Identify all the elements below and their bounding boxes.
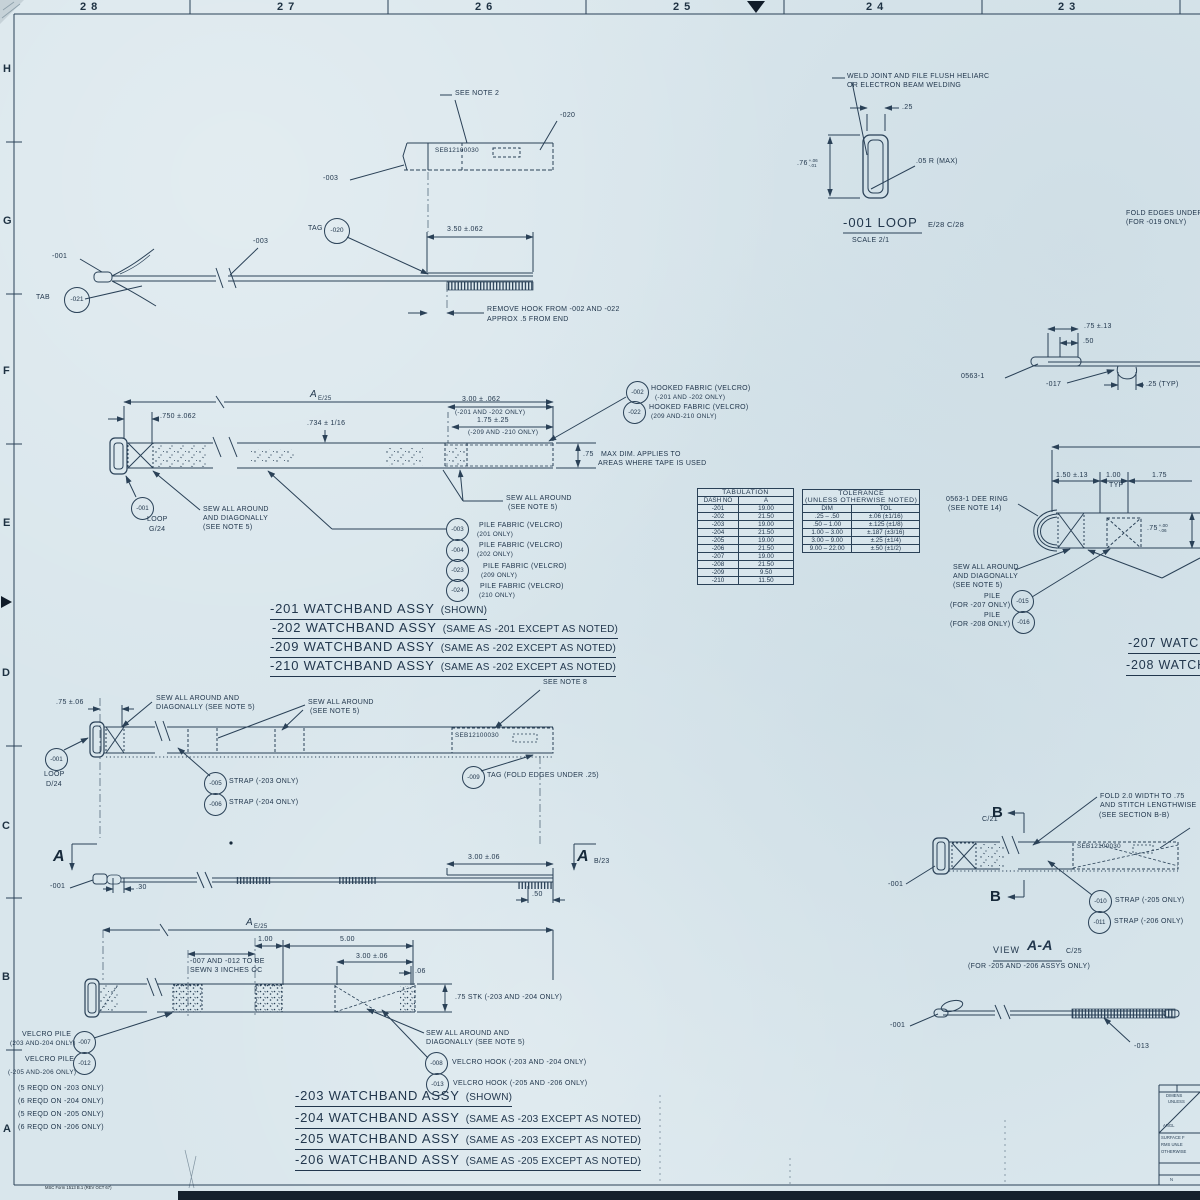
strap-note: STRAP (-206 ONLY) <box>1114 918 1183 927</box>
label-001: -001 <box>52 253 67 262</box>
loop-ref: D/24 <box>46 781 62 790</box>
pile-note: (FOR -207 ONLY) <box>950 602 1010 611</box>
pile-fabric-note: PILE FABRIC (VELCRO) <box>479 522 563 531</box>
title-block-text: OTHERWISE <box>1161 1150 1186 1155</box>
section-mark-a: A <box>53 848 65 866</box>
view-title-aa: A-A <box>1027 941 1053 950</box>
zone-number: 26 <box>475 1 497 13</box>
dim-734: .734 ± 1/16 <box>307 420 345 429</box>
tag-part-number: SEB12100030 <box>455 732 499 741</box>
sew-note: (SEE NOTE 5) <box>203 524 253 533</box>
pile-fabric-note: (201 ONLY) <box>477 531 513 540</box>
fold-note: (FOR -019 ONLY) <box>1126 219 1186 228</box>
zone-number: 28 <box>80 1 102 13</box>
label-003: -003 <box>253 238 268 247</box>
zone-letter: C <box>2 820 10 832</box>
assy-title-204: -204 WATCHBAND ASSY(SAME AS -203 EXCEPT … <box>295 1109 641 1129</box>
balloon-006: -006 <box>204 793 227 816</box>
loop-label: LOOP <box>147 516 168 525</box>
label-020: -020 <box>560 112 575 121</box>
dim-75-note: AREAS WHERE TAPE IS USED <box>598 460 706 469</box>
blueprint-sheet: 28 27 26 25 24 23 H G F E D C B A MSC Fo… <box>0 0 1200 1200</box>
label-003: -003 <box>323 175 338 184</box>
sew-note: SEW ALL AROUND <box>308 699 374 708</box>
assy-title-203: -203 WATCHBAND ASSY(SHOWN) <box>295 1087 512 1107</box>
sew-note: (SEE NOTE 5) <box>953 582 1003 591</box>
form-note: MSC Form 1513 B.1 (REV OCT 67) <box>45 1186 111 1191</box>
sew-note: SEW ALL AROUND <box>953 564 1019 573</box>
table-row: -2099.50 <box>698 569 794 577</box>
assy-title-208: -208 WATCHBAND <box>1126 656 1200 676</box>
table-row: 9.00 – 22.00±.50 (±1/2) <box>803 545 920 553</box>
dim-175: 1.75 ±.25 <box>477 417 509 426</box>
pile-fabric-note: PILE FABRIC (VELCRO) <box>483 563 567 572</box>
hooked-fabric-note: (-201 AND -202 ONLY) <box>655 394 725 403</box>
table-row: 3.00 – 9.00±.25 (±1/4) <box>803 537 920 545</box>
dim-a-overall: AE/25 <box>246 919 268 932</box>
zone-letter: B <box>2 971 10 983</box>
velcro-pile-note: (-205 AND-206 ONLY) <box>8 1069 76 1078</box>
pile-fabric-note: (202 ONLY) <box>477 551 513 560</box>
zone-number: 24 <box>866 1 888 13</box>
sew-note: (SEE NOTE 5) <box>310 708 360 717</box>
dim-100: 1.00 <box>1106 472 1121 481</box>
dim-25: .25 <box>902 104 913 113</box>
reqd-note: (6 REQD ON -204 ONLY) <box>18 1098 104 1107</box>
sewn-oc-note: -007 AND -012 TO BE <box>190 958 265 967</box>
title-block-text: UNLESS <box>1168 1100 1185 1105</box>
sew-note: DIAGONALLY (SEE NOTE 5) <box>426 1039 525 1048</box>
table-row: TABULATION <box>698 489 794 497</box>
balloon-008: -008 <box>425 1052 448 1075</box>
sectionAA-linework <box>70 841 596 903</box>
tolerance-table: TOLERANCE(UNLESS OTHERWISE NOTED) DIMTOL… <box>802 489 920 553</box>
assy-title-201: -201 WATCHBAND ASSY(SHOWN) <box>270 600 487 620</box>
tabulation-table: TABULATION DASH NOA -20119.00 -20221.50 … <box>697 488 794 585</box>
tag-detail-linework <box>350 95 557 232</box>
dim-75-13: .75 ±.13 <box>1084 323 1112 332</box>
dim-50: .50 <box>1083 338 1094 347</box>
balloon-022: -022 <box>623 401 646 424</box>
dim-175: 1.75 <box>1152 472 1167 481</box>
section-mark-b: B <box>990 888 1000 905</box>
loop-ref: G/24 <box>149 526 165 535</box>
balloon-010: -010 <box>1089 890 1112 913</box>
table-row: 1.00 – 3.00±.187 (±3/16) <box>803 529 920 537</box>
strap-note: STRAP (-205 ONLY) <box>1115 897 1184 906</box>
balloon-020: -020 <box>324 218 350 244</box>
balloon-007: -007 <box>73 1031 96 1054</box>
fold-stitch-note: FOLD 2.0 WIDTH TO .75 <box>1100 793 1200 802</box>
fold-stitch-note: (SEE SECTION B-B) <box>1099 812 1169 821</box>
weld-note: OR ELECTRON BEAM WELDING <box>847 82 961 91</box>
remove-hook-note: REMOVE HOOK FROM -002 AND -022 <box>487 306 620 315</box>
sew-note: SEW ALL AROUND AND <box>156 695 239 704</box>
pile-note: PILE <box>984 593 1000 602</box>
fold-note: FOLD EDGES UNDER <box>1126 210 1200 219</box>
assy-title-205: -205 WATCHBAND ASSY(SAME AS -203 EXCEPT … <box>295 1130 641 1150</box>
table-row: -20319.00 <box>698 521 794 529</box>
loop-detail-linework <box>828 78 922 233</box>
reqd-note: (5 REQD ON -203 ONLY) <box>18 1085 104 1094</box>
dim-100: 1.00 <box>258 936 273 945</box>
dim-76: .76+.06-.01 <box>797 158 818 168</box>
label-013: -013 <box>1134 1043 1149 1052</box>
assy-title-210: -210 WATCHBAND ASSY(SAME AS -202 EXCEPT … <box>270 657 616 677</box>
loop-label: LOOP <box>44 771 65 780</box>
sew-note: SEW ALL AROUND <box>203 506 269 515</box>
tab-label: TAB <box>36 294 50 303</box>
view-title-ref: C/25 <box>1066 948 1082 957</box>
sew-note: DIAGONALLY (SEE NOTE 5) <box>156 704 255 713</box>
velcro-hook-note: VELCRO HOOK (-203 AND -204 ONLY) <box>452 1059 586 1068</box>
table-row: -20821.50 <box>698 561 794 569</box>
zone-letter: G <box>3 215 12 227</box>
dim-300: 3.00 ±.06 <box>468 854 500 863</box>
dee-ring-note: 0563-1 DEE RING <box>946 496 1008 505</box>
see-note-8: SEE NOTE 8 <box>543 679 587 688</box>
dim-30: .30 <box>136 884 147 893</box>
balloon-009: -009 <box>462 766 485 789</box>
table-row: DASH NOA <box>698 497 794 505</box>
hooked-fabric-note: (209 AND-210 ONLY) <box>651 413 717 422</box>
balloon-003: -003 <box>446 518 469 541</box>
section-mark-b: B <box>992 804 1002 821</box>
dim-75-tol: .75+.00-.06 <box>1147 523 1168 533</box>
dim-750: .750 ±.062 <box>160 413 196 422</box>
sew-note: SEW ALL AROUND <box>506 495 572 504</box>
velcro-pile-note: VELCRO PILE <box>22 1031 71 1040</box>
see-note-2: SEE NOTE 2 <box>455 90 499 99</box>
dim-500: 5.00 <box>340 936 355 945</box>
balloon-012: -012 <box>73 1052 96 1075</box>
tag-part-number: SEB12100030 <box>435 147 479 156</box>
radius-note: .05 R (MAX) <box>916 158 958 167</box>
title-block-text: ANGL <box>1163 1124 1174 1129</box>
loop-detail-title: -001 LOOP <box>843 219 918 228</box>
tag-part-number: SEB12100030 <box>1077 843 1121 852</box>
remove-hook-note: APPROX .5 FROM END <box>487 316 569 325</box>
zone-number: 23 <box>1058 1 1080 13</box>
dim-300: 3.00 ±.06 <box>356 953 388 962</box>
table-row: -20119.00 <box>698 505 794 513</box>
table-row: -20719.00 <box>698 553 794 561</box>
balloon-005: -005 <box>204 772 227 795</box>
hooked-fabric-note: HOOKED FABRIC (VELCRO) <box>651 385 751 394</box>
section-mark-ref: B/23 <box>594 858 610 867</box>
sew-note: (SEE NOTE 5) <box>508 504 558 513</box>
assy-title-209: -209 WATCHBAND ASSY(SAME AS -202 EXCEPT … <box>270 638 616 658</box>
label-0563: 0563-1 <box>961 373 985 382</box>
tag-label: TAG <box>308 225 323 234</box>
dim-150: 1.50 ±.13 <box>1056 472 1088 481</box>
assy-title-206: -206 WATCHBAND ASSY(SAME AS -205 EXCEPT … <box>295 1151 641 1171</box>
table-row: -21011.50 <box>698 577 794 585</box>
assy-title-207: -207 WATCHBAND <box>1128 634 1200 654</box>
pile-note: PILE <box>984 612 1000 621</box>
view-title: VIEW <box>993 946 1020 955</box>
loop-detail-scale: SCALE 2/1 <box>852 237 889 246</box>
balloon-015: -015 <box>1011 590 1034 613</box>
zone-number: 27 <box>277 1 299 13</box>
side-view-bottom-linework <box>910 998 1179 1042</box>
label-001: -001 <box>890 1022 905 1031</box>
strap-note: STRAP (-203 ONLY) <box>229 778 298 787</box>
view-subtitle: (FOR -205 AND -206 ASSYS ONLY) <box>968 963 1090 972</box>
table-row: TOLERANCE(UNLESS OTHERWISE NOTED) <box>803 490 920 505</box>
assy-title-202: -202 WATCHBAND ASSY(SAME AS -201 EXCEPT … <box>272 619 618 639</box>
table-row: -20421.50 <box>698 529 794 537</box>
pile-fabric-note: PILE FABRIC (VELCRO) <box>480 583 564 592</box>
table-row: .25 – .50±.06 (±1/16) <box>803 513 920 521</box>
fold-stitch-note: AND STITCH LENGTHWISE <box>1100 802 1200 811</box>
pile-note: (FOR -208 ONLY) <box>950 621 1010 630</box>
table-row: -20221.50 <box>698 513 794 521</box>
dim-06: .06 <box>415 968 426 977</box>
dim-100-typ: TYP <box>1109 482 1124 491</box>
title-block-text: RMS UNLE <box>1161 1143 1183 1148</box>
strap-side-view-linework <box>80 232 533 313</box>
velcro-pile-note: VELCRO PILE <box>25 1056 74 1065</box>
label-017: -017 <box>1046 381 1061 390</box>
zone-letter: A <box>3 1123 11 1135</box>
reqd-note: (5 REQD ON -205 ONLY) <box>18 1111 104 1120</box>
dim-a-overall: AE/25 <box>310 391 332 404</box>
zone-letter: H <box>3 63 11 75</box>
label-001: -001 <box>50 883 65 892</box>
sew-note: AND DIAGONALLY <box>953 573 1018 582</box>
zone-letter: F <box>3 365 10 377</box>
pile-fabric-note: PILE FABRIC (VELCRO) <box>479 542 563 551</box>
reqd-note: (6 REQD ON -206 ONLY) <box>18 1124 104 1133</box>
title-block-text: SURFACE F <box>1161 1136 1185 1141</box>
sew-note: SEW ALL AROUND AND <box>426 1030 509 1039</box>
zone-letter: D <box>2 667 10 679</box>
sewn-oc-note: SEWN 3 INCHES OC <box>190 967 262 976</box>
table-row: -20621.50 <box>698 545 794 553</box>
table-row: -20519.00 <box>698 537 794 545</box>
tag-fold-note: TAG (FOLD EDGES UNDER .25) <box>487 772 599 781</box>
hooked-fabric-note: HOOKED FABRIC (VELCRO) <box>649 404 749 413</box>
balloon-024: -024 <box>446 579 469 602</box>
zone-letter: E <box>3 517 10 529</box>
table-row: .50 – 1.00±.125 (±1/8) <box>803 521 920 529</box>
zone-number: 25 <box>673 1 695 13</box>
dee-ring-note: (SEE NOTE 14) <box>948 505 1002 514</box>
dim-50: .50 <box>532 891 543 900</box>
dim-300: 3.00 ± .062 <box>462 396 500 405</box>
dim-75-note: MAX DIM. APPLIES TO <box>601 451 681 460</box>
weld-note: WELD JOINT AND FILE FLUSH HELIARC <box>847 73 989 82</box>
table-row: DIMTOL <box>803 505 920 513</box>
section-mark-a: A <box>577 848 589 866</box>
loop-detail-refs: E/28 C/28 <box>928 221 964 230</box>
balloon-021: -021 <box>64 287 90 313</box>
balloon-011: -011 <box>1088 911 1111 934</box>
dim-175-note: (-209 AND -210 ONLY) <box>468 429 538 438</box>
title-block-text: N <box>1170 1178 1173 1183</box>
pile-fabric-note: (209 ONLY) <box>481 572 517 581</box>
label-001: -001 <box>888 881 903 890</box>
dim-75-max: .75 <box>583 451 594 460</box>
assy207-linework <box>1015 447 1200 597</box>
balloon-016: -016 <box>1012 611 1035 634</box>
balloon-001-loop: -001 <box>45 748 68 771</box>
dim-25-typ: .25 (TYP) <box>1146 381 1179 390</box>
dim-350: 3.50 ±.062 <box>447 226 483 235</box>
strap-note: STRAP (-204 ONLY) <box>229 799 298 808</box>
dim-stk: .75 STK (-203 AND -204 ONLY) <box>455 994 562 1003</box>
sew-note: AND DIAGONALLY <box>203 515 268 524</box>
dim-75-06: .75 ±.06 <box>56 699 84 708</box>
velcro-pile-note: (203 AND-204 ONLY) <box>10 1040 76 1049</box>
